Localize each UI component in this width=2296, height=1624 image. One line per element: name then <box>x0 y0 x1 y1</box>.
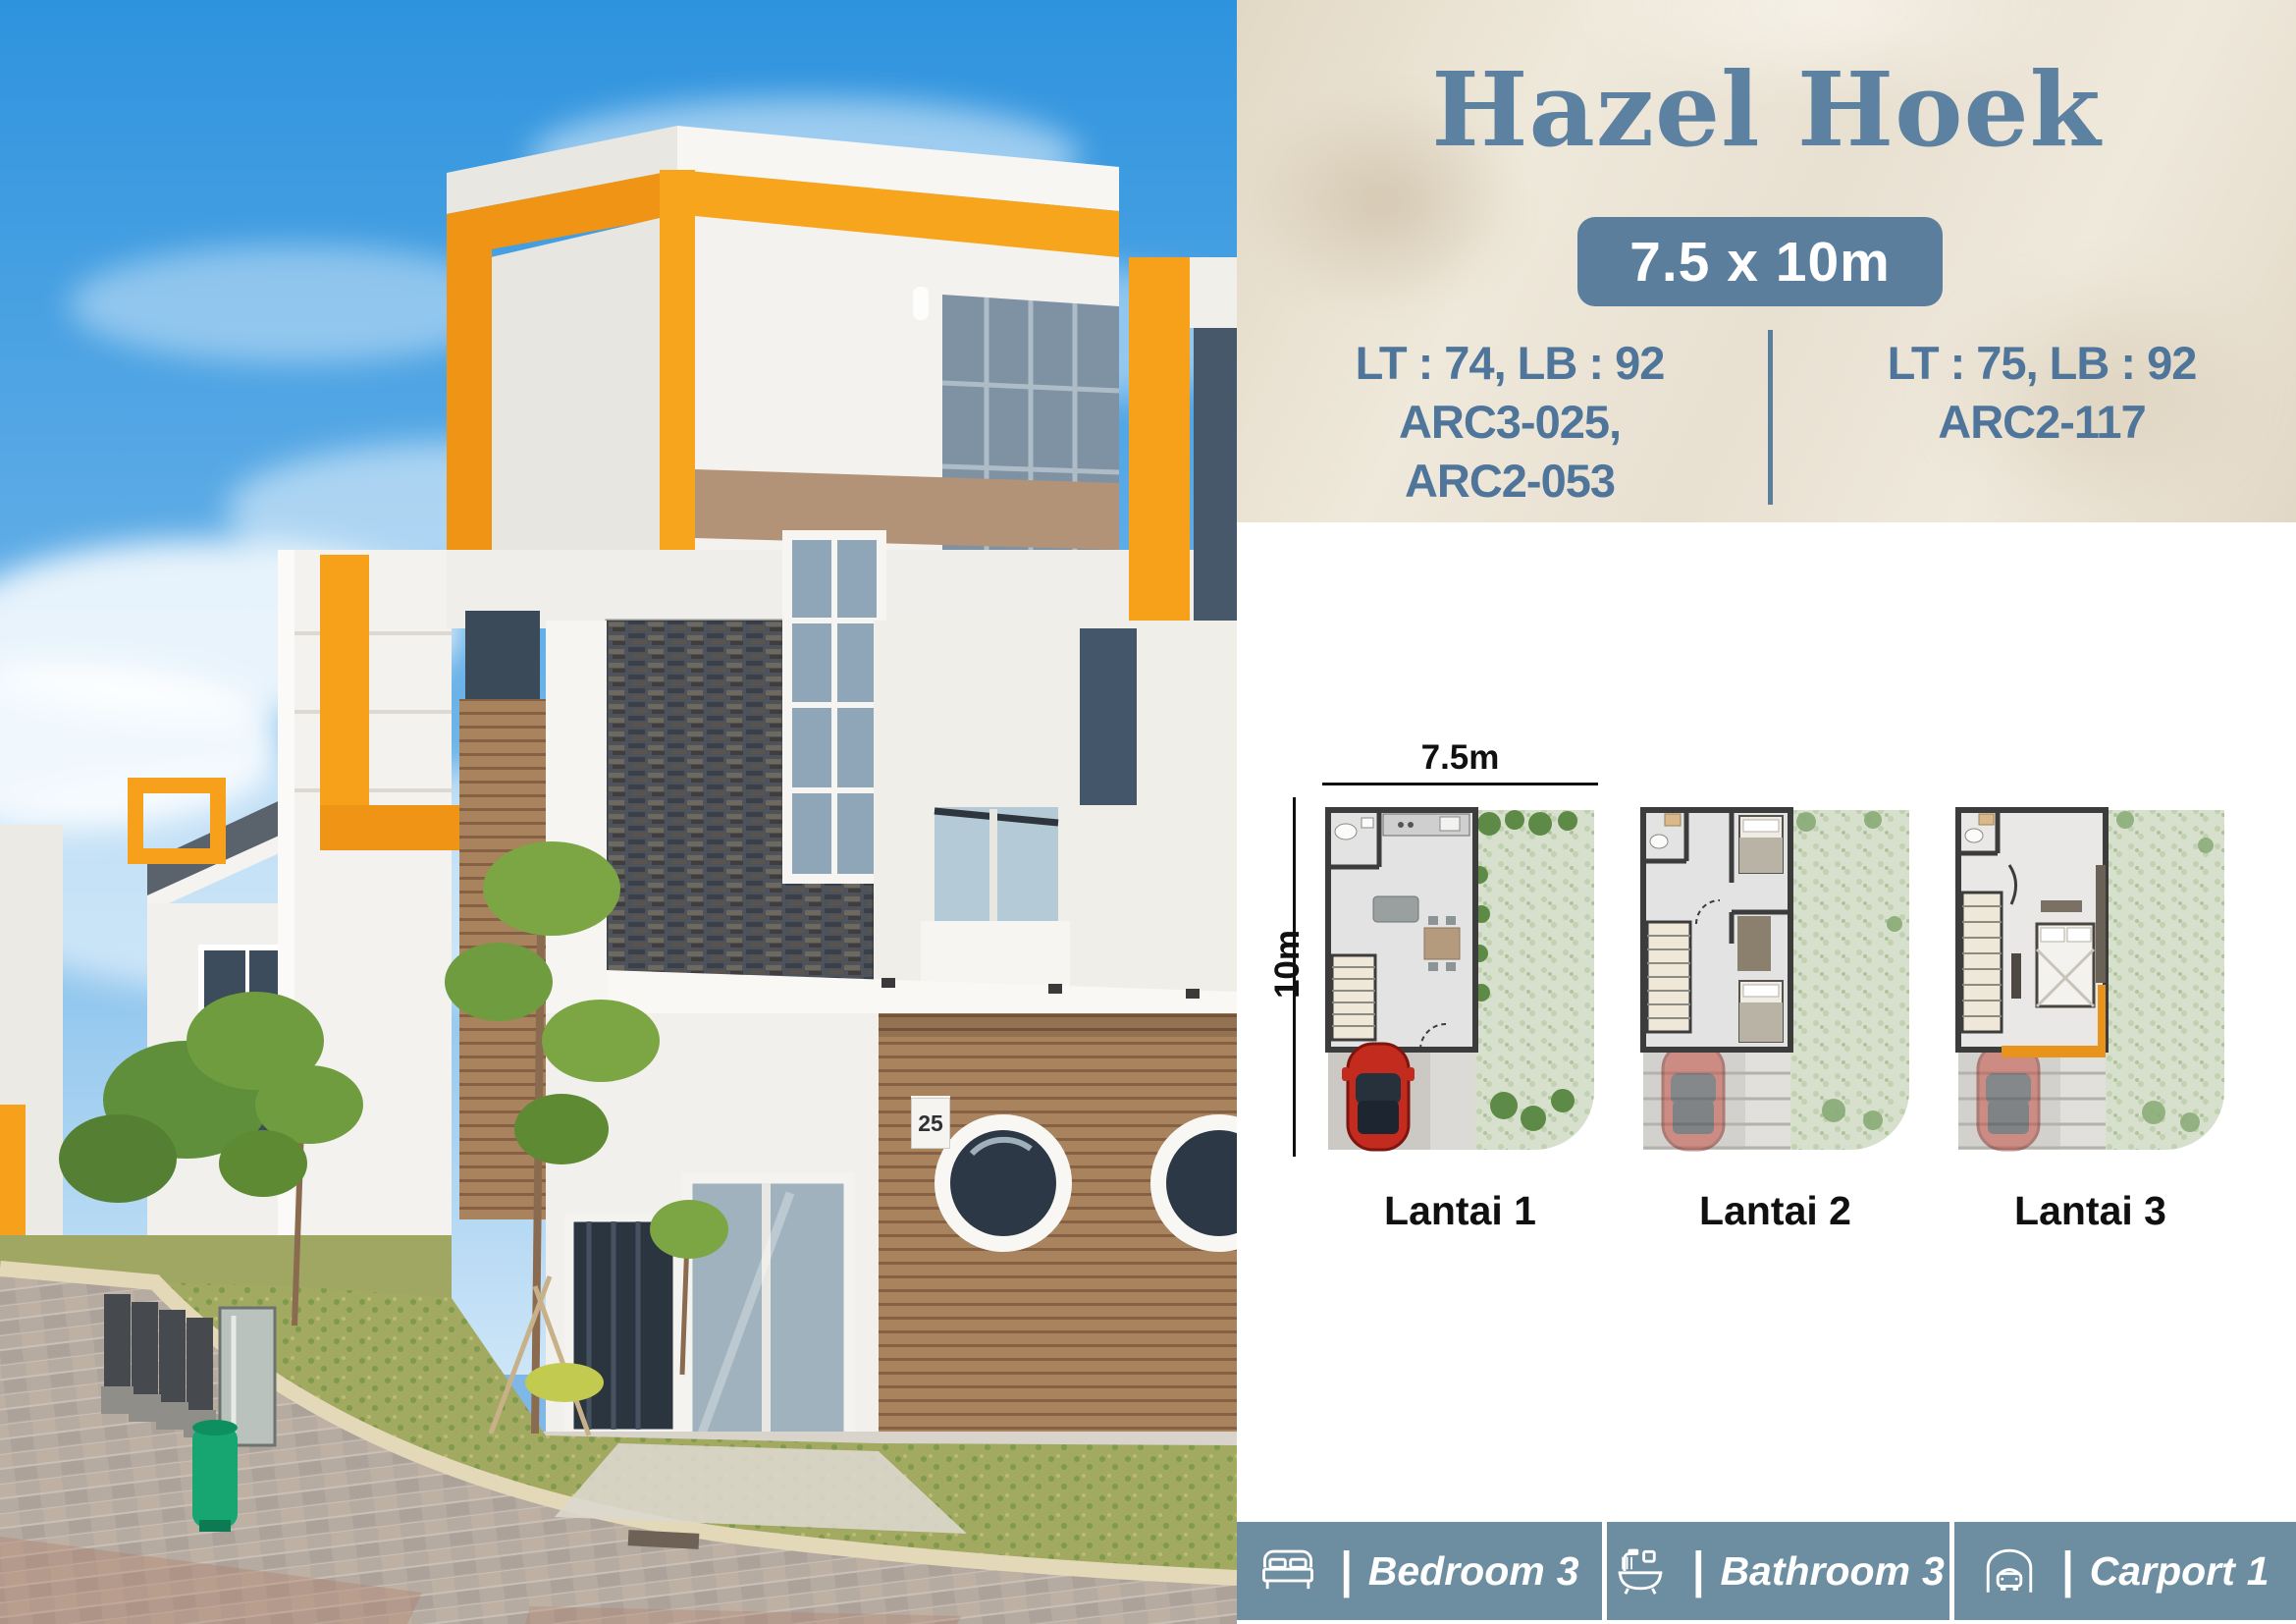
property-flyer: 25 Hazel Hoek 7.5 x 10m LT : 74, LB : 92… <box>0 0 2296 1624</box>
specs-left-column: LT : 74, LB : 92 ARC3-025, ARC2-053 <box>1268 334 1751 511</box>
floorplan-lantai-3 <box>1952 806 2228 1156</box>
car-ghost <box>1663 1044 1724 1150</box>
floorplan-label-3: Lantai 3 <box>1952 1188 2228 1234</box>
feature-bedroom: | Bedroom3 <box>1237 1522 1602 1620</box>
feature-name: Bathroom <box>1720 1548 1910 1594</box>
house-number-plate: 25 <box>911 1098 950 1149</box>
separator: | <box>1340 1543 1352 1599</box>
car-ghost <box>1978 1044 2039 1150</box>
feature-name: Bedroom <box>1368 1548 1545 1594</box>
feature-count: 1 <box>2247 1548 2269 1594</box>
depth-dimension-line <box>1293 797 1296 1157</box>
carport-icon <box>1981 1546 2038 1596</box>
house-photo-illustration <box>0 0 1237 1624</box>
feature-count: 3 <box>1557 1548 1579 1594</box>
feature-bathroom: | Bathroom3 <box>1607 1522 1949 1620</box>
spec-line: LT : 74, LB : 92 <box>1268 334 1751 393</box>
balcony <box>921 807 1070 996</box>
house-photo <box>0 0 1237 1624</box>
bathtub-icon <box>1612 1546 1669 1596</box>
car-top-view <box>1342 1044 1415 1150</box>
width-dimension-line <box>1322 783 1598 785</box>
width-dimension-label: 7.5m <box>1322 738 1598 778</box>
floorplan-1-image <box>1322 806 1598 1156</box>
floorplan-2-image <box>1637 806 1913 1156</box>
spec-line: LT : 75, LB : 92 <box>1800 334 2283 393</box>
spec-line: ARC3-025, <box>1268 393 1751 452</box>
tall-window <box>787 535 881 879</box>
spec-line: ARC2-053 <box>1268 452 1751 511</box>
orange-cube <box>447 126 1119 553</box>
feature-carport: | Carport1 <box>1954 1522 2296 1620</box>
feature-label: Carport1 <box>2090 1548 2269 1595</box>
specs-right-column: LT : 75, LB : 92 ARC2-117 <box>1800 334 2283 452</box>
size-badge: 7.5 x 10m <box>1577 217 1943 306</box>
page-title: Hazel Hoek <box>1237 55 2296 165</box>
separator: | <box>1692 1543 1704 1599</box>
bed-icon <box>1259 1546 1316 1596</box>
feature-count: 3 <box>1922 1548 1945 1594</box>
specs-divider <box>1768 330 1773 505</box>
green-bin <box>192 1420 238 1532</box>
spec-line: ARC2-117 <box>1800 393 2283 452</box>
depth-dimension-label: 10m <box>1268 886 1308 1043</box>
floorplan-label-2: Lantai 2 <box>1637 1188 1913 1234</box>
feature-label: Bathroom3 <box>1720 1548 1944 1595</box>
floorplan-lantai-1 <box>1322 806 1598 1156</box>
bed <box>2037 924 2094 1006</box>
floorplan-3-image <box>1952 806 2228 1156</box>
feature-bar: | Bedroom3 | Bathroom3 <box>1237 1522 2296 1620</box>
floorplan-lantai-2 <box>1637 806 1913 1156</box>
feature-name: Carport <box>2090 1548 2235 1594</box>
floorplan-label-1: Lantai 1 <box>1322 1188 1598 1234</box>
separator: | <box>2061 1543 2073 1599</box>
feature-label: Bedroom3 <box>1368 1548 1579 1595</box>
